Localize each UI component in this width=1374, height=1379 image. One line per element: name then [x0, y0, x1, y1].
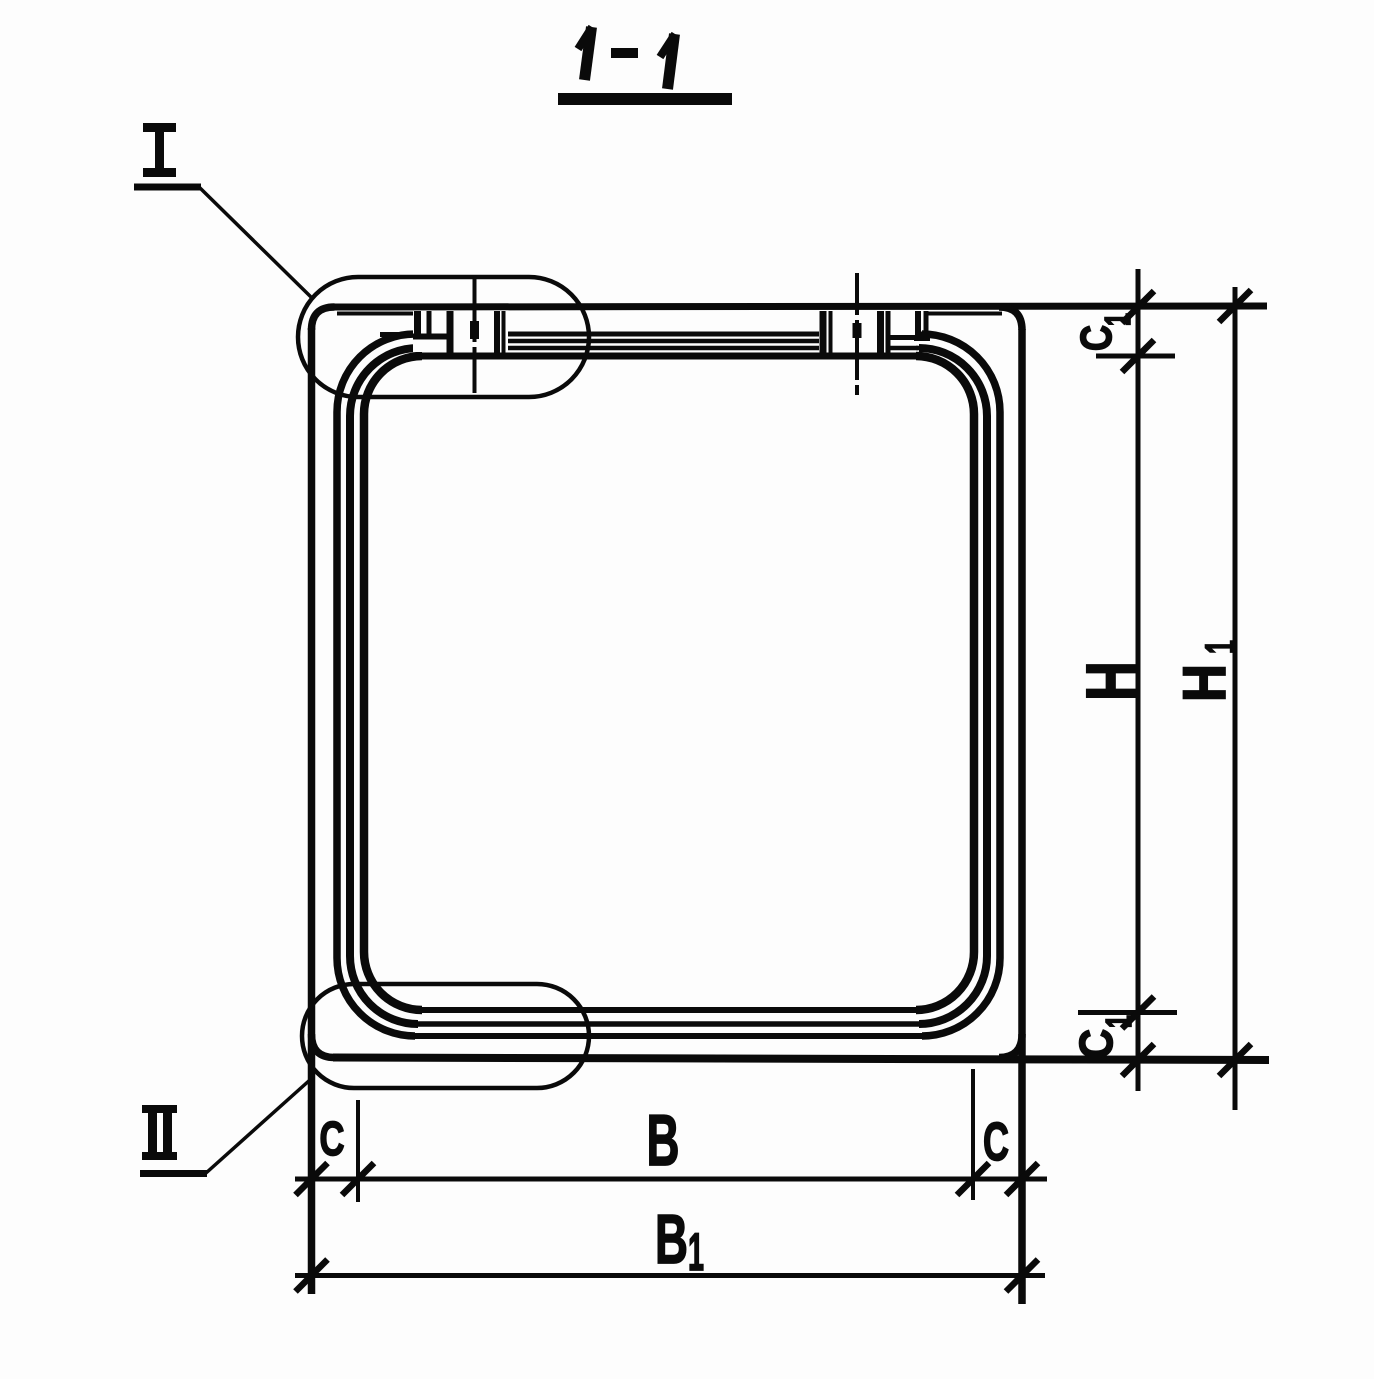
svg-text:1: 1 — [688, 1223, 704, 1282]
svg-text:1: 1 — [1097, 313, 1138, 326]
svg-text:H: H — [1171, 664, 1238, 702]
svg-text:C: C — [320, 1113, 345, 1166]
svg-text:H: H — [1073, 661, 1152, 701]
svg-text:C: C — [1070, 1029, 1122, 1059]
svg-text:C: C — [1072, 325, 1121, 351]
svg-text:B: B — [655, 1200, 688, 1278]
svg-text:B: B — [647, 1101, 680, 1181]
svg-text:1: 1 — [1197, 640, 1245, 654]
svg-text:1: 1 — [1098, 1015, 1139, 1028]
svg-text:C: C — [983, 1112, 1009, 1172]
